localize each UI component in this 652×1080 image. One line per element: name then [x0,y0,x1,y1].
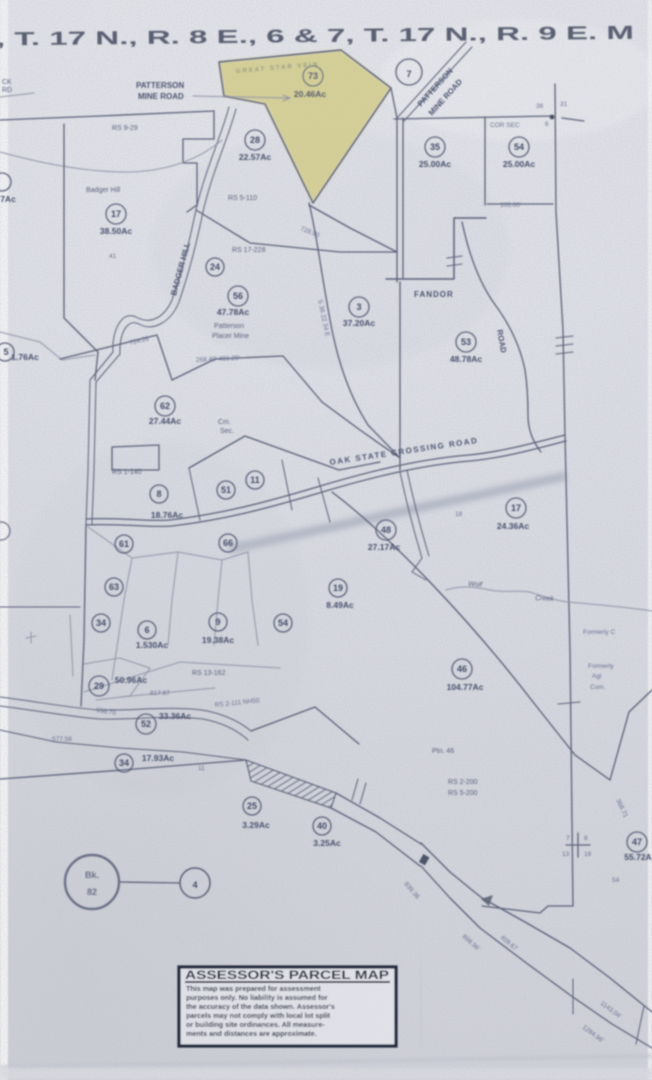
svg-text:purposes only. No liability is: purposes only. No liability is assumed f… [186,993,328,1002]
svg-text:48.78Ac: 48.78Ac [450,354,482,364]
svg-text:52: 52 [141,719,151,729]
svg-text:6: 6 [545,121,549,128]
svg-text:1.530Ac: 1.530Ac [136,640,168,650]
svg-text:RS 5-110: RS 5-110 [228,195,257,202]
svg-text:105.00': 105.00' [500,202,521,209]
svg-text:3.29Ac: 3.29Ac [242,820,270,830]
svg-text:7: 7 [406,69,411,79]
svg-text:This map was prepared for asse: This map was prepared for assessment [186,984,321,993]
svg-text:Sec.: Sec. [220,428,234,435]
svg-text:Formerly C: Formerly C [583,629,615,636]
svg-text:3.25Ac: 3.25Ac [313,838,341,848]
svg-text:17: 17 [511,503,521,513]
svg-text:RS 5-200: RS 5-200 [448,790,478,797]
svg-text:25: 25 [247,801,257,811]
svg-text:53: 53 [461,337,471,347]
svg-text:25.00Ac: 25.00Ac [419,159,451,169]
svg-text:25.00Ac: 25.00Ac [503,159,535,169]
svg-text:48: 48 [381,525,391,535]
svg-text:51: 51 [221,485,231,495]
svg-text:RS 17-228: RS 17-228 [232,247,266,254]
svg-text:18: 18 [584,851,592,858]
svg-text:37.20Ac: 37.20Ac [343,318,375,328]
svg-text:46: 46 [457,664,467,674]
svg-text:20.46Ac: 20.46Ac [294,89,326,99]
svg-text:73: 73 [308,71,318,81]
svg-text:27.17Ac: 27.17Ac [368,542,400,552]
svg-text:7: 7 [566,835,570,842]
svg-text:34: 34 [119,758,129,768]
svg-text:17: 17 [111,209,121,219]
svg-text:FANDOR: FANDOR [414,290,454,299]
svg-text:27.44Ac: 27.44Ac [149,416,181,426]
svg-text:33.36Ac: 33.36Ac [159,711,191,721]
svg-text:66: 66 [223,538,233,548]
svg-text:18.76Ac: 18.76Ac [151,510,183,520]
svg-text:24: 24 [210,262,220,272]
svg-text:28: 28 [250,135,260,145]
svg-text:82: 82 [87,887,97,897]
svg-text:6: 6 [144,625,149,635]
svg-text:7Ac: 7Ac [0,194,16,204]
svg-text:COR SEC: COR SEC [490,122,520,129]
svg-text:8: 8 [156,489,161,499]
svg-text:Agl: Agl [592,673,602,680]
svg-text:Patterson: Patterson [214,323,244,330]
svg-text:3: 3 [356,302,361,312]
svg-text:47: 47 [632,837,642,847]
svg-text:13: 13 [562,851,570,858]
svg-text:PATTERSON: PATTERSON [136,81,184,90]
svg-text:61: 61 [119,539,129,549]
svg-text:11: 11 [250,475,260,485]
svg-text:104.77Ac: 104.77Ac [447,682,484,692]
svg-text:Bk.: Bk. [85,870,99,880]
svg-text:34: 34 [96,618,106,628]
svg-text:56: 56 [233,291,243,301]
svg-text:ASSESSOR'S PARCEL MAP: ASSESSOR'S PARCEL MAP [185,970,389,982]
svg-text:CK: CK [2,79,12,86]
svg-text:parcels may not comply with lo: parcels may not comply with local lot sp… [186,1011,331,1020]
svg-text:18: 18 [455,511,463,518]
svg-text:31: 31 [560,101,568,108]
svg-text:MINE ROAD: MINE ROAD [138,92,184,101]
svg-text:RS 9-29: RS 9-29 [112,125,138,132]
svg-text:Cm.: Cm. [218,419,231,426]
svg-text:62: 62 [160,401,170,411]
svg-text:17.93Ac: 17.93Ac [142,753,174,763]
svg-text:Com.: Com. [590,684,606,691]
svg-text:36: 36 [536,103,544,110]
svg-text:11: 11 [198,765,205,772]
svg-text:4: 4 [192,880,197,890]
svg-text:RS 13-162: RS 13-162 [192,670,226,677]
svg-text:Ptn. 46: Ptn. 46 [432,748,454,755]
svg-text:24.36Ac: 24.36Ac [497,521,529,531]
svg-text:19.38Ac: 19.38Ac [202,635,234,645]
svg-text:40: 40 [317,821,327,831]
svg-text:35: 35 [430,142,440,152]
svg-text:Creek: Creek [535,595,555,603]
svg-text:19: 19 [333,583,343,593]
svg-text:54: 54 [514,142,524,152]
svg-text:RS 1-140: RS 1-140 [112,469,142,476]
svg-text:the accuracy of the data shown: the accuracy of the data shown. Assessor… [186,1002,335,1011]
svg-text:38.50Ac: 38.50Ac [100,226,132,236]
svg-text:RD: RD [2,87,12,94]
svg-text:50.96Ac: 50.96Ac [115,675,147,685]
svg-text:54: 54 [612,877,620,884]
svg-text:Wolf: Wolf [468,581,484,589]
svg-text:Placer Mine: Placer Mine [212,333,249,340]
svg-text:1.76Ac: 1.76Ac [11,352,39,362]
svg-text:63: 63 [109,582,119,592]
svg-text:22.57Ac: 22.57Ac [239,152,271,162]
svg-text:41: 41 [109,253,117,260]
svg-text:Badger Hill: Badger Hill [86,187,121,194]
svg-text:ments and distances are approx: ments and distances are approximate. [186,1029,317,1038]
svg-text:8.49Ac: 8.49Ac [326,600,354,610]
svg-text:Formerly: Formerly [588,663,614,670]
svg-text:47.78Ac: 47.78Ac [217,307,249,317]
svg-text:5: 5 [3,347,8,357]
svg-text:RS 2-200: RS 2-200 [448,779,478,786]
svg-text:8: 8 [584,835,588,842]
svg-text:55.72A: 55.72A [624,852,651,862]
svg-text:29: 29 [94,681,104,691]
svg-text:9: 9 [215,617,220,627]
svg-text:577.58: 577.58 [52,736,72,743]
svg-text:or building site ordinances. A: or building site ordinances. All measure… [186,1020,325,1029]
svg-text:54: 54 [278,618,288,628]
svg-text:817.87: 817.87 [150,690,170,697]
